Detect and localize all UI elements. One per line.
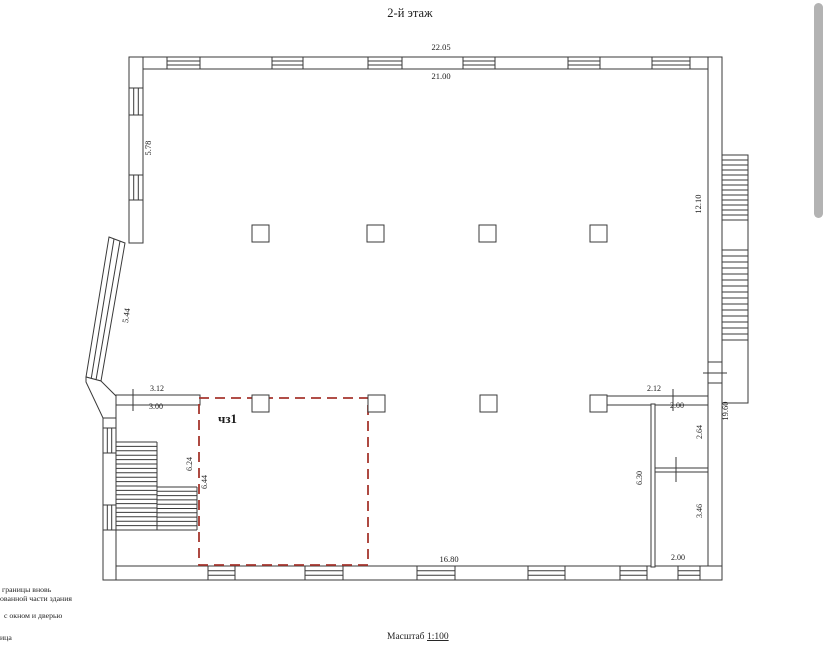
dim-annex-bottom: 2.00: [671, 553, 685, 562]
dim-stair-side: 6.24: [185, 457, 194, 471]
window-symbol: [417, 566, 455, 580]
annex-top-wall: [607, 396, 708, 405]
column: [252, 225, 269, 242]
top-wall: [129, 57, 722, 69]
floor-plan-drawing: 2-й этаж: [0, 0, 828, 654]
interior-staircase: [116, 442, 197, 530]
dim-left-angled: 5.44: [120, 307, 132, 324]
right-wall: [708, 57, 722, 580]
building-walls: [86, 57, 722, 580]
room-label: чз1: [218, 411, 237, 426]
window-symbol: [167, 57, 200, 69]
annex-middle-wall: [655, 468, 708, 472]
dim-right-stair: 19.60: [720, 401, 730, 420]
dim-right-inner: 12.10: [693, 194, 703, 213]
dim-top-inner: 21.00: [431, 71, 450, 81]
window-symbol: [103, 428, 116, 453]
window-symbol: [678, 566, 700, 580]
left-upper-wall: [129, 57, 143, 243]
window-symbol: [208, 566, 235, 580]
dim-room-side: 6.44: [200, 475, 209, 489]
scrollbar-thumb[interactable]: [814, 3, 823, 218]
dimension-labels: 22.05 21.00 5.78 5.44 12.10 19.60 3.12 3…: [120, 42, 730, 564]
scale-value: 1:100: [427, 632, 449, 642]
legend-line-2: ованной части здания: [0, 594, 72, 603]
exterior-stair-outline: [722, 155, 748, 403]
window-symbol: [305, 566, 343, 580]
dim-annex-left: 6.30: [635, 471, 644, 485]
window-symbol: [129, 175, 143, 200]
page-title: 2-й этаж: [387, 6, 433, 20]
column: [590, 225, 607, 242]
window-symbol: [129, 88, 143, 115]
window-symbol: [528, 566, 565, 580]
dim-stair-top-inner: 3.00: [149, 402, 163, 411]
dim-left-upper: 5.78: [143, 141, 153, 156]
legend: границы вновь ованной части здания с окн…: [0, 585, 72, 642]
column: [480, 395, 497, 412]
window-symbol: [652, 57, 690, 69]
stair-treads: [722, 250, 748, 340]
dim-annex-top-inner: 2.00: [670, 401, 684, 410]
column: [368, 395, 385, 412]
stair-treads: [157, 487, 197, 530]
floor-plan-page: 2-й этаж: [0, 0, 828, 654]
window-symbol: [463, 57, 495, 69]
column: [479, 225, 496, 242]
left-corner-block: [86, 377, 116, 418]
scale-label: Масштаб: [387, 631, 425, 642]
dim-bottom-inner: 16.80: [439, 554, 458, 564]
dim-stair-top-outer: 3.12: [150, 384, 164, 393]
scale-note: Масштаб 1:100: [387, 631, 449, 642]
dim-top-outer: 22.05: [431, 42, 450, 52]
legend-line-1: границы вновь: [2, 585, 52, 594]
angled-wall: [86, 237, 125, 381]
column: [252, 395, 269, 412]
annex-left-wall: [651, 404, 655, 567]
column: [367, 225, 384, 242]
window-symbol: [272, 57, 303, 69]
dim-annex-room2-side: 3.46: [695, 504, 704, 518]
left-lower-wall: [103, 397, 116, 580]
window-symbol: [568, 57, 600, 69]
columns: [252, 225, 607, 412]
dim-annex-room1-side: 2.64: [695, 425, 704, 439]
dim-annex-top-outer: 2.12: [647, 384, 661, 393]
exterior-staircase: [722, 155, 748, 403]
stair-treads: [722, 155, 748, 220]
window-symbol: [103, 505, 116, 530]
stair-treads: [116, 442, 157, 530]
legend-line-4: ица: [0, 633, 12, 642]
column: [590, 395, 607, 412]
window-symbol: [368, 57, 402, 69]
window-symbol: [620, 566, 647, 580]
legend-line-3: с окном и дверью: [4, 611, 63, 620]
